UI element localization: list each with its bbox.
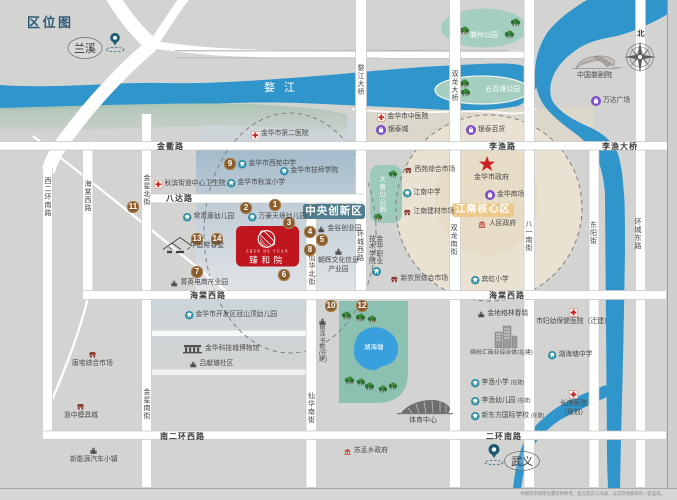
svg-text:武义: 武义 — [511, 455, 533, 468]
svg-text:臻和院: 臻和院 — [249, 254, 286, 265]
svg-text:兰溪: 兰溪 — [74, 42, 96, 55]
svg-text:ZHEN HE YUAN: ZHEN HE YUAN — [246, 249, 289, 253]
